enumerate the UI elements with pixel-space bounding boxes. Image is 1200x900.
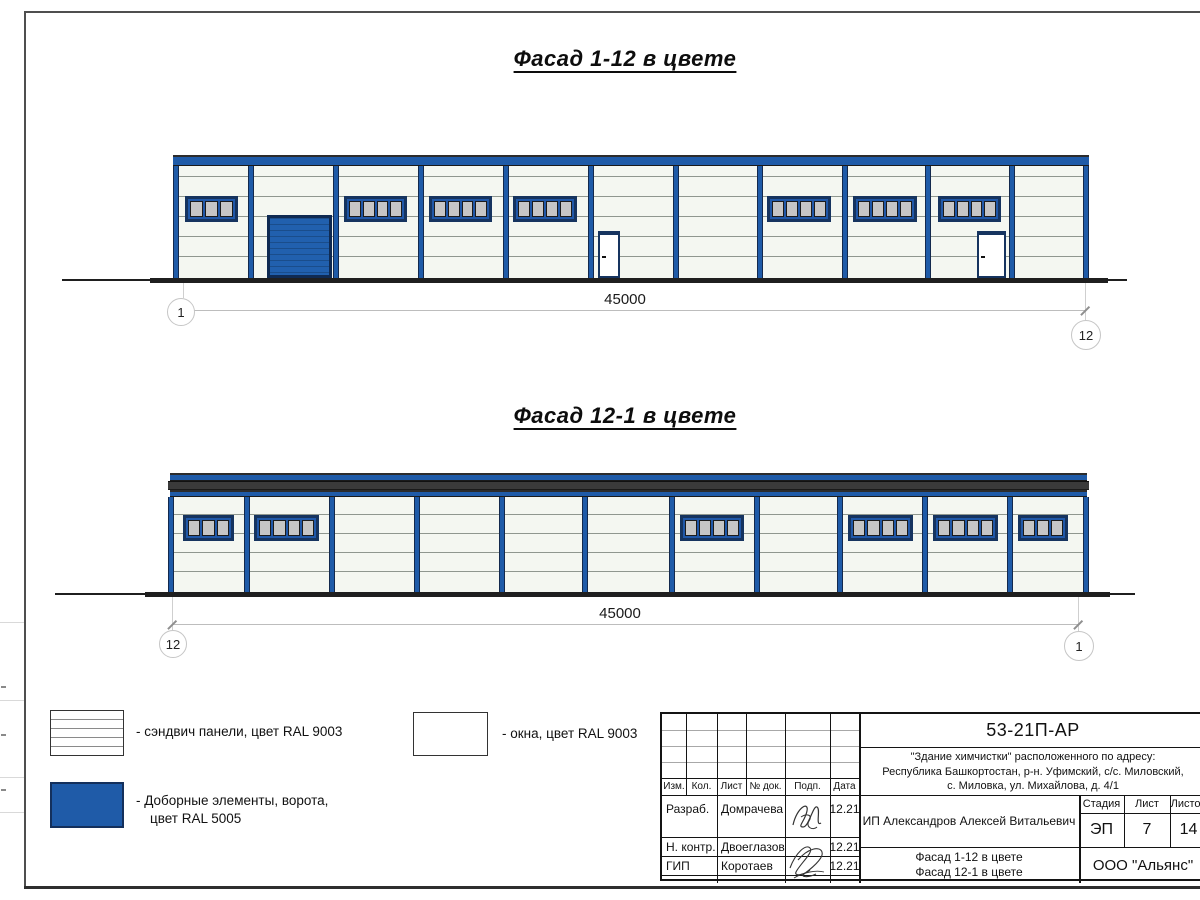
window-pane: [938, 520, 950, 536]
window-pane: [882, 520, 894, 536]
signature-icon: [786, 838, 829, 882]
window-pane: [259, 520, 271, 536]
tb-date-nkontr: 12.21: [830, 837, 859, 856]
tb-role-nkontr: Н. контр.: [662, 837, 717, 856]
tb-sheet-value: 7: [1124, 813, 1170, 847]
tb-col-kol: Кол.: [686, 778, 717, 795]
steel-column: [837, 497, 843, 592]
ground-line: [145, 592, 1110, 597]
steel-column: [922, 497, 928, 592]
window-pane: [967, 520, 979, 536]
roof-edge-band: [170, 473, 1087, 481]
tb-stage-value: ЭП: [1079, 813, 1124, 847]
tb-sheets-value: 14: [1170, 813, 1200, 847]
steel-column: [168, 497, 174, 592]
tb-sheet-title-line2: Фасад 12-1 в цвете: [859, 865, 1079, 880]
steel-column: [244, 497, 250, 592]
tb-name-korotaev: Коротаев: [717, 856, 785, 875]
window-pane: [202, 520, 214, 536]
panel-joint-line: [168, 571, 1089, 572]
tb-col-izm: Изм.: [662, 778, 686, 795]
facade-title: Фасад 12-1 в цвете: [440, 403, 810, 429]
tb-sheet-header: Лист: [1124, 795, 1170, 813]
signature-icon: [787, 797, 829, 835]
tb-role-razrab: Разраб.: [662, 799, 717, 819]
title-block: Изм. Кол. Лист № док. Подп. Дата Разраб.…: [660, 712, 1200, 881]
legend-label-accent-elements-line1: - Доборные элементы, ворота,: [136, 793, 328, 808]
drawing-sheet: { "colors": { "accent_blue": "#1f5ba8", …: [0, 0, 1200, 900]
tb-sheet-title-line1: Фасад 1-12 в цвете: [859, 850, 1079, 865]
tb-address-line2: Республика Башкортостан, р-н. Уфимский, …: [859, 765, 1200, 780]
facade-wall: [168, 497, 1089, 592]
steel-column: [414, 497, 420, 592]
window-pane: [853, 520, 865, 536]
window-pane: [1051, 520, 1063, 536]
window-pane: [288, 520, 300, 536]
window-pane: [1037, 520, 1049, 536]
window-pane: [867, 520, 879, 536]
legend-label-sandwich-panels: - сэндвич панели, цвет RAL 9003: [136, 724, 342, 739]
window-pane: [685, 520, 697, 536]
steel-column: [1083, 497, 1089, 592]
dim-extension-line: [1078, 597, 1079, 631]
tb-address-line1: "Здание химчистки" расположенного по адр…: [859, 750, 1200, 765]
tb-col-doc: № док.: [746, 778, 785, 795]
window-pane: [273, 520, 285, 536]
tb-date-gip: 12.21: [830, 856, 859, 875]
window-pane: [727, 520, 739, 536]
steel-column: [1007, 497, 1013, 592]
tb-address: "Здание химчистки" расположенного по адр…: [859, 750, 1200, 795]
legend-swatch-windows: [413, 712, 488, 756]
window-pane: [302, 520, 314, 536]
window-pane: [699, 520, 711, 536]
window-pane: [981, 520, 993, 536]
tb-role-gip: ГИП: [662, 856, 717, 875]
tb-col-list: Лист: [717, 778, 746, 795]
parapet-band: [168, 481, 1089, 490]
ribbon-window: [183, 515, 234, 541]
tb-col-podp: Подп.: [785, 778, 830, 795]
steel-column: [754, 497, 760, 592]
tb-sheet-title: Фасад 1-12 в цвете Фасад 12-1 в цвете: [859, 850, 1079, 882]
steel-column: [582, 497, 588, 592]
window-pane: [713, 520, 725, 536]
tb-date-razrab: 12.21: [830, 799, 859, 819]
legend-label-windows: - окна, цвет RAL 9003: [502, 726, 637, 741]
tb-client: ИП Александров Алексей Витальевич: [859, 795, 1079, 847]
axis-bubble: 12: [159, 630, 187, 658]
steel-column: [329, 497, 335, 592]
tb-stage-header: Стадия: [1079, 795, 1124, 813]
ground-line: [55, 593, 145, 595]
tb-address-line3: с. Миловка, ул. Михайлова, д. 4/1: [859, 779, 1200, 794]
ground-line: [1110, 593, 1135, 595]
steel-column: [499, 497, 505, 592]
dimension-value: 45000: [599, 605, 641, 622]
window-pane: [896, 520, 908, 536]
window-pane: [1023, 520, 1035, 536]
ribbon-window: [933, 515, 998, 541]
window-pane: [188, 520, 200, 536]
steel-column: [669, 497, 675, 592]
ribbon-window: [848, 515, 913, 541]
ribbon-window: [1018, 515, 1068, 541]
panel-joint-line: [168, 552, 1089, 553]
ribbon-window: [254, 515, 319, 541]
tb-col-data: Дата: [830, 778, 859, 795]
axis-bubble: 1: [1064, 631, 1094, 661]
tb-sheets-header: Листов: [1170, 795, 1200, 813]
legend-swatch-sandwich-panels: [50, 710, 124, 756]
tb-doc-code: 53-21П-АР: [859, 714, 1200, 747]
legend-swatch-accent-elements: [50, 782, 124, 828]
tb-name-dvoeglazov: Двоеглазов: [717, 837, 785, 856]
roof-edge-band: [170, 490, 1087, 497]
tb-name-domracheva: Домрачева: [717, 799, 785, 819]
dimension-line: [172, 624, 1078, 625]
window-pane: [217, 520, 229, 536]
ribbon-window: [680, 515, 744, 541]
legend-label-accent-elements-line2: цвет RAL 5005: [150, 811, 241, 826]
window-pane: [952, 520, 964, 536]
tb-company: ООО "Альянс": [1079, 847, 1200, 883]
